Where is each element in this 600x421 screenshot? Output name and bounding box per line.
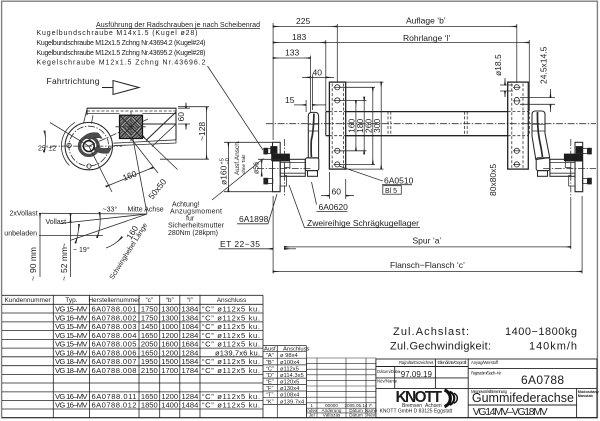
svg-text:Kugelbundschraube M12x1.5 Zchn: Kugelbundschraube M12x1.5 Zchng Nr.43695…	[37, 50, 206, 57]
svg-text:Ausf.: Ausf.	[264, 347, 278, 353]
svg-text:Dátum: Dátum	[349, 413, 363, 418]
svg-text:80x80x5: 80x80x5	[488, 164, 498, 196]
svg-text:Kugelbundschraube M12x1.5 Zchn: Kugelbundschraube M12x1.5 Zchng Nr.43694…	[37, 40, 206, 47]
svg-text:Zweireihige Schrägkugellager: Zweireihige Schrägkugellager	[307, 218, 419, 228]
svg-text:6A0788.008: 6A0788.008	[92, 366, 137, 375]
svg-text:ø18.5: ø18.5	[493, 54, 503, 76]
svg-text:Változás: Változás	[323, 413, 341, 418]
svg-text:VG 18–MV: VG 18–MV	[55, 348, 88, 357]
svg-text:Anschluss: Anschluss	[283, 347, 310, 353]
svg-text:Ausführung der Radschrauben je: Ausführung der Radschrauben je nach Sche…	[96, 22, 260, 29]
svg-text:~: ~	[28, 276, 38, 281]
svg-text:1450: 1450	[141, 322, 158, 331]
svg-text:Sicherheitsmutter: Sicherheitsmutter	[168, 223, 225, 230]
svg-text:ø139,7x6 ku.: ø139,7x6 ku.	[215, 348, 260, 357]
svg-text:“C” ø112x5 ku.: “C” ø112x5 ku.	[202, 401, 260, 410]
svg-text:90 mm: 90 mm	[28, 247, 38, 273]
svg-text:“l”: “l”	[187, 297, 193, 304]
svg-text:1400: 1400	[161, 401, 178, 410]
svg-text:Ausf.Ansch.: Ausf.Ansch.	[234, 140, 241, 175]
svg-text:24.5x14.5: 24.5x14.5	[539, 46, 549, 84]
svg-text:2150: 2150	[141, 366, 158, 375]
svg-text:ø108x4: ø108x4	[280, 393, 300, 399]
svg-text:“C”: “C”	[266, 366, 274, 372]
svg-text:6A0788.012: 6A0788.012	[92, 401, 137, 410]
svg-text:“D”: “D”	[266, 373, 274, 379]
svg-text:‘97.09.19: ‘97.09.19	[399, 370, 432, 379]
svg-text:60: 60	[176, 112, 186, 122]
svg-text:1650: 1650	[141, 348, 158, 357]
svg-text:1384: 1384	[181, 313, 198, 322]
svg-text:1784: 1784	[181, 366, 198, 375]
svg-text:6A0788.003: 6A0788.003	[92, 322, 137, 331]
svg-text:Zul.Gechwindigkeit:: Zul.Gechwindigkeit:	[390, 341, 491, 353]
svg-text:1084: 1084	[181, 322, 198, 331]
svg-text:6A0788.001: 6A0788.001	[92, 305, 137, 314]
svg-text:VG14MV–VG18MV: VG14MV–VG18MV	[473, 406, 548, 418]
svg-text:50x50: 50x50	[146, 177, 168, 202]
svg-text:“K”: “K”	[266, 399, 274, 405]
svg-text:Rajzolta/Gezeichnet: Rajzolta/Gezeichnet	[399, 360, 434, 365]
svg-text:280Nm (28kpm): 280Nm (28kpm)	[168, 230, 218, 237]
svg-text:Fahrtrichtung: Fahrtrichtung	[47, 76, 100, 86]
svg-text:6A0788.007: 6A0788.007	[92, 357, 137, 366]
svg-text:1700: 1700	[161, 366, 178, 375]
svg-text:1650: 1650	[141, 331, 158, 340]
svg-text:1484: 1484	[181, 401, 198, 410]
svg-text:ø100x4: ø100x4	[280, 360, 300, 366]
svg-text:183: 183	[292, 32, 306, 42]
svg-text:VG 18–MV: VG 18–MV	[55, 366, 88, 375]
svg-text:60: 60	[332, 187, 342, 197]
svg-text:1200: 1200	[161, 348, 178, 357]
svg-text:Név/Name: Név/Name	[377, 379, 398, 384]
svg-text:~: ~	[59, 243, 69, 248]
svg-text:“C” ø112x5 ku.: “C” ø112x5 ku.	[202, 366, 260, 375]
svg-text:6A0510: 6A0510	[384, 175, 414, 185]
svg-text:Bl 5: Bl 5	[385, 188, 397, 195]
svg-text:1850: 1850	[141, 401, 158, 410]
svg-text:Anschluss: Anschluss	[217, 297, 247, 304]
svg-text:Anyag/Werstoff: Anyag/Werstoff	[471, 360, 499, 365]
svg-text:Név: Név	[367, 413, 376, 418]
svg-text:“F”: “F”	[266, 386, 273, 392]
svg-text:1384: 1384	[181, 305, 198, 314]
svg-text:Dátum/Date: Dátum/Date	[377, 369, 401, 374]
svg-text:1600: 1600	[161, 340, 178, 349]
svg-text:2050: 2050	[141, 340, 158, 349]
svg-text:VG 15–MV: VG 15–MV	[55, 305, 88, 314]
svg-text:1284: 1284	[181, 331, 198, 340]
svg-text:Kundennummer: Kundennummer	[4, 297, 51, 304]
svg-text:300: 300	[372, 119, 382, 133]
svg-text:225: 225	[296, 16, 310, 26]
svg-text:Flansch−Flansch ‘c’: Flansch−Flansch ‘c’	[390, 260, 465, 270]
svg-text:40: 40	[313, 68, 323, 78]
svg-text:133: 133	[285, 48, 299, 58]
svg-text:“b”: “b”	[166, 297, 174, 304]
svg-text:~128: ~128	[197, 122, 207, 141]
svg-text:25°±2: 25°±2	[38, 145, 56, 153]
svg-text:VG 15–MV: VG 15–MV	[55, 331, 88, 340]
svg-text:1400−1800kg: 1400−1800kg	[505, 326, 577, 338]
svg-text:“T”: “T”	[266, 393, 273, 399]
svg-text:6A0788.006: 6A0788.006	[92, 348, 137, 357]
svg-text:Achtung!: Achtung!	[172, 202, 200, 209]
svg-text:−0: −0	[225, 158, 231, 164]
svg-text:VG 16–MV: VG 16–MV	[55, 401, 88, 410]
svg-text:VG 16–MV: VG 16–MV	[55, 313, 88, 322]
svg-text:6A0788.004: 6A0788.004	[92, 331, 137, 340]
svg-text:~33°: ~33°	[103, 206, 118, 214]
svg-text:ø120x5: ø120x5	[280, 380, 299, 386]
svg-text:Anzugsmoment: Anzugsmoment	[170, 209, 222, 216]
svg-text:VG 18–MV: VG 18–MV	[55, 357, 88, 366]
svg-text:“C” ø112x5 ku.: “C” ø112x5 ku.	[202, 340, 260, 349]
svg-text:Spur ‘a’: Spur ‘a’	[413, 236, 442, 246]
svg-text:“C” ø112x5 ku.: “C” ø112x5 ku.	[202, 305, 260, 314]
svg-text:Typ.: Typ.	[65, 297, 77, 304]
svg-text:Herstellernummer: Herstellernummer	[88, 297, 140, 304]
svg-text:ø112x5: ø112x5	[280, 366, 299, 372]
svg-text:“A”: “A”	[266, 353, 274, 359]
svg-text:ohne Takt: ohne Takt	[241, 154, 246, 174]
svg-text:ø114.3x5: ø114.3x5	[280, 373, 304, 379]
svg-text:6A0788: 6A0788	[521, 373, 564, 387]
svg-text:1000: 1000	[161, 322, 178, 331]
svg-text:1500: 1500	[161, 357, 178, 366]
svg-text:1684: 1684	[181, 340, 198, 349]
svg-text:1300: 1300	[161, 313, 178, 322]
svg-text:6A0620: 6A0620	[319, 202, 349, 212]
svg-text:52 mm: 52 mm	[59, 247, 69, 273]
svg-text:6A0788.005: 6A0788.005	[92, 340, 137, 349]
svg-text:Kugelbundschraube M14x1.5 (Kug: Kugelbundschraube M14x1.5 (Kugel ø28)	[37, 30, 198, 37]
svg-text:Rajzszám/Sach–Nr: Rajzszám/Sach–Nr	[471, 371, 502, 376]
svg-text:1200: 1200	[161, 331, 178, 340]
svg-text:ø160: ø160	[219, 165, 229, 185]
svg-text:1750: 1750	[141, 313, 158, 322]
svg-text:Jel: Jel	[309, 413, 315, 418]
svg-text:1584: 1584	[181, 357, 198, 366]
svg-text:2xVollast: 2xVollast	[10, 210, 38, 217]
svg-text:fur: fur	[186, 216, 195, 223]
svg-text:Auflage ‘b’: Auflage ‘b’	[406, 16, 446, 26]
svg-text:Rohrlange ‘l’: Rohrlange ‘l’	[403, 33, 450, 43]
svg-text:~: ~	[59, 276, 69, 281]
svg-text:1284: 1284	[181, 348, 198, 357]
svg-text:VG 15–MV: VG 15–MV	[55, 322, 88, 331]
svg-text:1950: 1950	[141, 357, 158, 366]
svg-text:“c”: “c”	[146, 297, 154, 304]
svg-text:ø 98x4: ø 98x4	[280, 353, 298, 359]
svg-text:unbeladen: unbeladen	[4, 231, 37, 238]
svg-text:~ 19°: ~ 19°	[73, 246, 90, 254]
svg-text:VG 15–MV: VG 15–MV	[55, 340, 88, 349]
svg-text:Vollast: Vollast	[46, 219, 67, 226]
svg-text:1300: 1300	[161, 305, 178, 314]
svg-text:KNOTT GmbH D 83125 Eggstatt: KNOTT GmbH D 83125 Eggstatt	[380, 408, 453, 414]
svg-text:“C” ø112x5 ku.: “C” ø112x5 ku.	[202, 331, 260, 340]
svg-text:“C” ø112x5 ku.: “C” ø112x5 ku.	[202, 313, 260, 322]
svg-text:Gummifederachse: Gummifederachse	[472, 391, 574, 405]
svg-text:“C” ø112x5 ku.: “C” ø112x5 ku.	[202, 357, 260, 366]
svg-text:140km/h: 140km/h	[529, 341, 577, 353]
svg-text:“E”: “E”	[266, 380, 274, 386]
svg-text:Zul.Achslast:: Zul.Achslast:	[393, 326, 469, 338]
svg-text:Masstab: Masstab	[578, 394, 594, 398]
svg-text:Mitte Achse: Mitte Achse	[128, 207, 164, 214]
svg-text:ET 22−35: ET 22−35	[220, 239, 260, 249]
svg-text:“B”: “B”	[266, 360, 274, 366]
svg-text:“C” ø112x5 ku.: “C” ø112x5 ku.	[202, 322, 260, 331]
svg-text:Kegelschraube M12x1.5 Zchng Nr: Kegelschraube M12x1.5 Zchng Nr.43696.2	[37, 60, 206, 67]
svg-text:160: 160	[121, 168, 138, 183]
svg-text:6A1898: 6A1898	[239, 214, 269, 224]
svg-text:ø139.7x4: ø139.7x4	[280, 399, 305, 405]
svg-text:1750: 1750	[141, 305, 158, 314]
svg-text:Ellenőrizte/Geprüft: Ellenőrizte/Geprüft	[438, 360, 468, 365]
svg-text:15: 15	[285, 95, 295, 105]
svg-text:6A0788.002: 6A0788.002	[92, 313, 137, 322]
svg-text:ø130x4: ø130x4	[280, 386, 300, 392]
